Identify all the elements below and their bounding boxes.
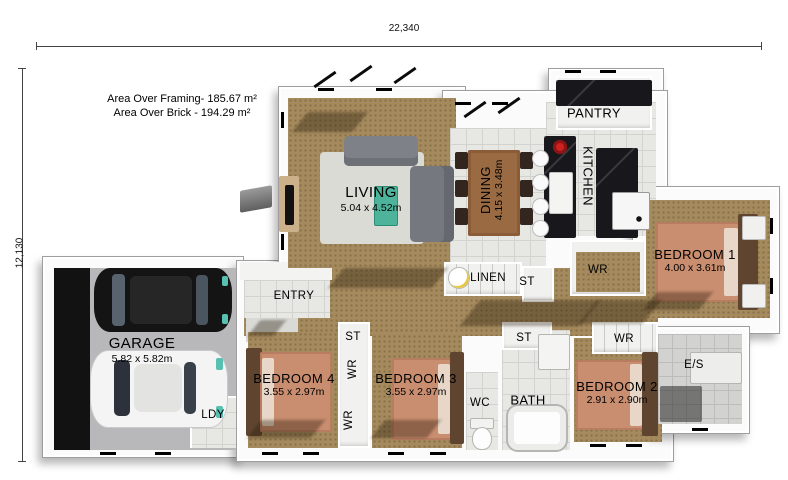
car-glass-accent <box>222 314 228 324</box>
room-name: ENTRY <box>274 290 315 304</box>
window-marker <box>155 452 171 455</box>
dining-chair <box>455 208 468 225</box>
room-label-linen: LINEN <box>470 272 506 286</box>
window-marker <box>455 102 471 105</box>
window-marker <box>100 452 116 455</box>
window-marker <box>281 234 284 250</box>
room-name: ST <box>519 276 535 290</box>
stool <box>532 150 549 167</box>
oven <box>612 192 650 230</box>
area-over-brick: Area Over Brick - 194.29 m² <box>98 106 266 120</box>
nightstand <box>742 216 766 240</box>
room-name: BEDROOM 1 <box>654 247 736 262</box>
window-marker <box>600 70 616 73</box>
room-label-ensuite: E/S <box>684 359 704 373</box>
room-name: LDY <box>201 409 225 423</box>
car-glass-accent <box>222 276 228 286</box>
window-marker <box>303 452 319 455</box>
area-over-framing: Area Over Framing- 185.67 m² <box>98 92 266 106</box>
room-label-bath: BATH <box>510 392 545 407</box>
dimension-width-label: 22,340 <box>389 23 420 34</box>
room-size: 4.15 x 3.48m <box>493 160 505 221</box>
room-label-wc: WC <box>470 397 490 411</box>
room-name: ST <box>345 331 361 345</box>
room-name: LIVING <box>341 184 402 202</box>
sofa <box>344 136 418 166</box>
tv <box>285 185 294 225</box>
pantry-bench <box>556 80 652 106</box>
room-label-kitchen: KITCHEN <box>580 146 595 206</box>
dimension-tick <box>18 461 26 462</box>
room-name: E/S <box>684 359 704 373</box>
window-marker <box>565 70 581 73</box>
roof-beam <box>349 65 372 82</box>
car-glass-accent <box>216 358 223 370</box>
room-name: PANTRY <box>567 105 621 120</box>
room-name: WR <box>588 264 608 278</box>
room-label-garage: GARAGE 5.82 x 5.82m <box>109 335 176 365</box>
room-size: 3.55 x 2.97m <box>375 386 457 398</box>
window-marker <box>430 452 446 455</box>
car-windshield <box>114 360 130 416</box>
room-label-dining: DINING 4.15 x 3.48m <box>478 160 506 221</box>
room-name: BEDROOM 2 <box>576 379 658 394</box>
room-label-store-bath: ST <box>516 332 532 346</box>
window-marker <box>262 452 278 455</box>
cooktop <box>553 140 567 154</box>
garage-dark-wall <box>54 268 90 450</box>
toilet <box>472 427 492 450</box>
room-label-living: LIVING 5.04 x 4.52m <box>341 184 402 214</box>
room-label-entry: ENTRY <box>274 290 315 304</box>
kitchen-sink <box>549 172 573 214</box>
car-roof <box>130 276 192 324</box>
bath-vanity <box>538 334 570 370</box>
floor-plan: 22,340 12,130 Area Over Framing- 185.67 … <box>0 0 788 480</box>
dimension-tick <box>761 42 762 50</box>
room-name: WC <box>470 397 490 411</box>
room-label-laundry: LDY <box>201 409 225 423</box>
car-window <box>184 362 196 414</box>
room-name: KITCHEN <box>580 146 595 206</box>
room-name: BEDROOM 3 <box>375 371 457 386</box>
room-name: WR <box>347 359 361 379</box>
window-marker <box>376 88 392 91</box>
bathtub <box>506 404 568 452</box>
stool <box>532 220 549 237</box>
decor-plate <box>448 267 470 289</box>
window-marker <box>388 452 404 455</box>
window-marker <box>281 112 284 128</box>
room-name: DINING <box>478 160 493 221</box>
dimension-height-label: 12,130 <box>15 238 26 269</box>
room-label-store-hall: ST <box>519 276 535 290</box>
room-name: WR <box>614 333 634 347</box>
roof-beam <box>393 67 416 84</box>
room-label-pantry: PANTRY <box>567 105 621 120</box>
room-label-bedroom3: BEDROOM 3 3.55 x 2.97m <box>375 371 457 399</box>
car-window <box>196 275 208 325</box>
car-roof <box>134 364 182 412</box>
room-name: WR <box>343 410 357 430</box>
room-label-wr-bed2: WR <box>614 333 634 347</box>
room-name: GARAGE <box>109 335 176 353</box>
window-marker <box>318 88 334 91</box>
nightstand <box>742 284 766 308</box>
dimension-line-top <box>36 46 762 47</box>
car-windshield <box>112 274 125 326</box>
dining-chair <box>520 208 533 225</box>
window-marker <box>626 444 642 447</box>
room-label-store-bed43: ST <box>345 331 361 345</box>
room-label-bedroom1: BEDROOM 1 4.00 x 3.61m <box>654 247 736 275</box>
room-size: 5.04 x 4.52m <box>341 202 402 214</box>
dining-chair <box>455 180 468 197</box>
dining-chair <box>455 152 468 169</box>
room-size: 4.00 x 3.61m <box>654 262 736 274</box>
room-label-wr-bed4: WR <box>347 359 361 379</box>
window-marker <box>692 428 708 431</box>
stool <box>532 198 549 215</box>
window-marker <box>770 218 773 234</box>
floor-shadow <box>328 268 448 288</box>
room-label-wr-bed3: WR <box>343 410 357 430</box>
room-size: 5.82 x 5.82m <box>109 353 176 365</box>
room-size: 2.91 x 2.90m <box>576 394 658 406</box>
window-marker <box>770 278 773 294</box>
window-marker <box>590 444 606 447</box>
eave <box>240 185 272 213</box>
sofa <box>410 166 454 242</box>
room-size: 3.55 x 2.97m <box>253 386 335 398</box>
shower-shadow <box>660 386 702 422</box>
room-name: ST <box>516 332 532 346</box>
room-name: BATH <box>510 392 545 407</box>
wr-master-floor <box>576 252 640 292</box>
dining-chair <box>520 152 533 169</box>
stool <box>532 174 549 191</box>
room-label-bedroom4: BEDROOM 4 3.55 x 2.97m <box>253 371 335 399</box>
area-notes: Area Over Framing- 185.67 m² Area Over B… <box>98 92 266 120</box>
dimension-tick <box>18 68 26 69</box>
room-name: BEDROOM 4 <box>253 371 335 386</box>
room-label-bedroom2: BEDROOM 2 2.91 x 2.90m <box>576 379 658 407</box>
dimension-tick <box>36 42 37 50</box>
room-label-wr-master: WR <box>588 264 608 278</box>
room-name: LINEN <box>470 272 506 286</box>
